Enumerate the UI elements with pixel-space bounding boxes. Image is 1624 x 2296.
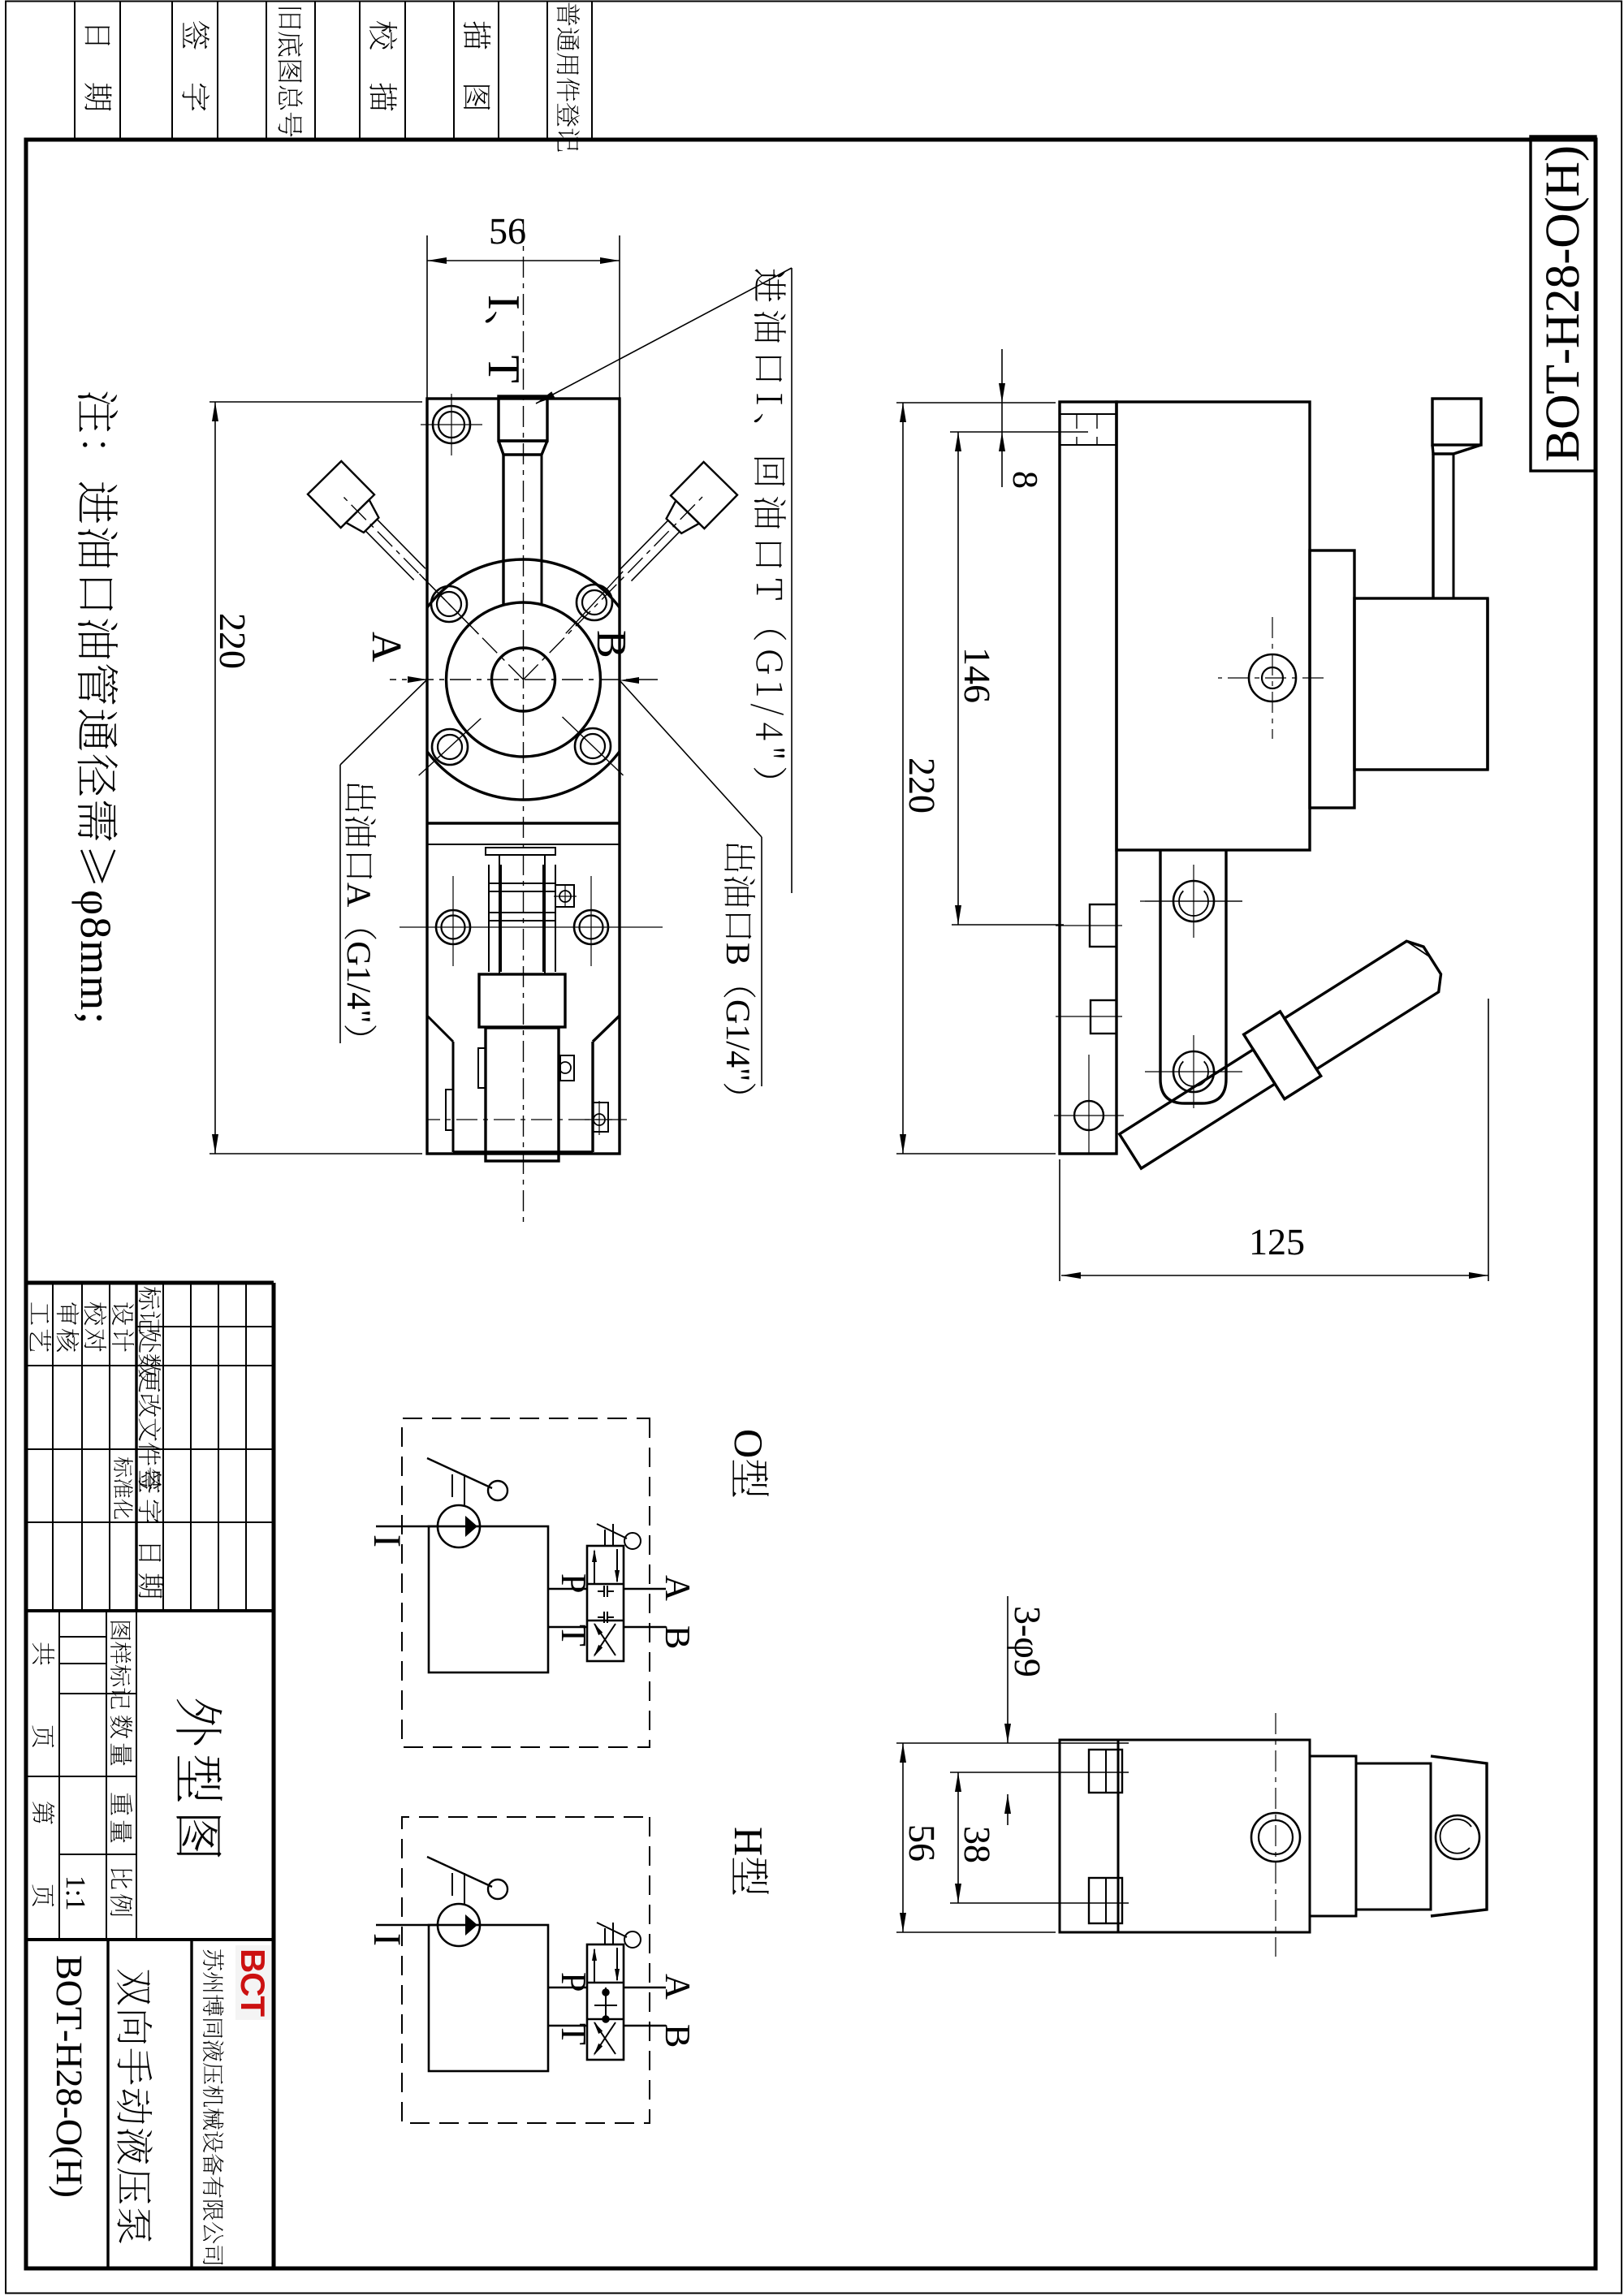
svg-text:BCT: BCT — [234, 1949, 272, 2017]
